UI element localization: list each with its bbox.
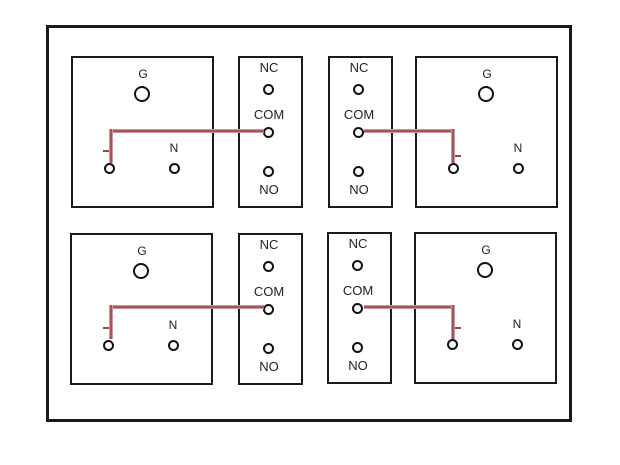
wire-com-to-hot-top-right [364,129,455,133]
wire-com-to-hot-top-right-drop [451,129,455,163]
wire-com-to-hot-bottom-right [364,305,455,309]
wire-com-to-hot-bottom-right-drop [451,305,455,339]
com-terminal [263,127,274,138]
wire-tick [103,150,109,152]
no-label: NO [349,183,369,197]
neutral-label: N [170,141,179,155]
com-label: COM [344,108,374,122]
com-terminal [353,127,364,138]
nc-label: NC [260,238,279,252]
hot-terminal [104,163,115,174]
ground-terminal [478,86,494,102]
neutral-label: N [169,318,178,332]
wire-tick [103,327,109,329]
com-terminal [263,304,274,315]
com-label: COM [254,108,284,122]
com-terminal [352,303,363,314]
neutral-label: N [514,141,523,155]
neutral-terminal [169,163,180,174]
com-label: COM [343,284,373,298]
wire-com-to-hot-top-left [109,129,264,133]
no-terminal [263,166,274,177]
neutral-terminal [512,339,523,350]
wire-com-to-hot-top-left-drop [109,129,113,163]
com-label: COM [254,285,284,299]
ground-terminal [477,262,493,278]
hot-terminal [447,339,458,350]
nc-label: NC [260,61,279,75]
ground-label: G [138,67,147,81]
outlet-bottom-left: G N [70,233,213,385]
wire-tick [455,327,461,329]
ground-label: G [482,67,491,81]
hot-terminal [448,163,459,174]
neutral-label: N [513,317,522,331]
wire-com-to-hot-bottom-left [109,305,264,309]
no-terminal [353,166,364,177]
ground-label: G [137,244,146,258]
hot-terminal [103,340,114,351]
nc-terminal [352,260,363,271]
no-terminal [352,342,363,353]
nc-terminal [263,261,274,272]
nc-label: NC [350,61,369,75]
no-label: NO [259,360,279,374]
no-terminal [263,343,274,354]
no-label: NO [259,183,279,197]
neutral-terminal [168,340,179,351]
wire-tick [455,155,461,157]
nc-label: NC [349,237,368,251]
wire-com-to-hot-bottom-left-drop [109,305,113,339]
ground-label: G [481,243,490,257]
wiring-diagram: G N G N G N G N NC COM NO NC COM [0,0,620,465]
nc-terminal [353,84,364,95]
ground-terminal [134,86,150,102]
neutral-terminal [513,163,524,174]
nc-terminal [263,84,274,95]
ground-terminal [133,263,149,279]
no-label: NO [348,359,368,373]
relay-strip-bottom-left: NC COM NO [238,233,303,385]
